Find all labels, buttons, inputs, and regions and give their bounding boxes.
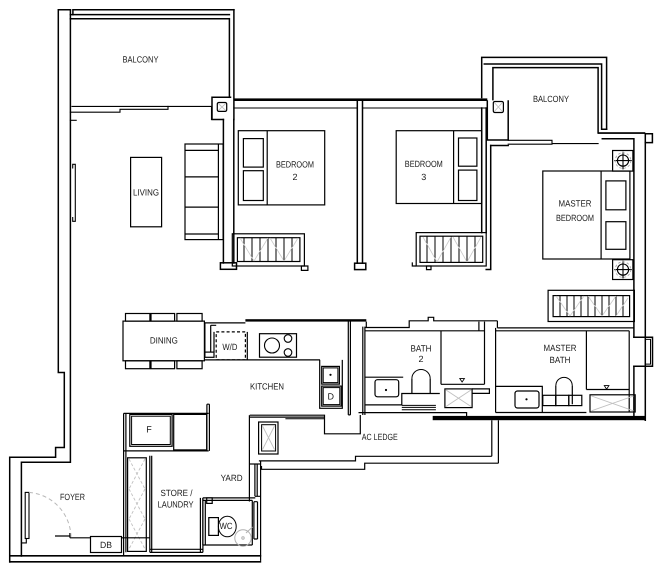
svg-text:2: 2 — [418, 354, 423, 364]
svg-text:2: 2 — [292, 172, 297, 182]
svg-text:BEDROOM: BEDROOM — [276, 160, 314, 170]
svg-text:F: F — [146, 425, 152, 435]
svg-text:BEDROOM: BEDROOM — [405, 159, 443, 169]
svg-text:LAUNDRY: LAUNDRY — [158, 500, 194, 510]
svg-text:YARD: YARD — [221, 473, 243, 483]
svg-text:BATH: BATH — [411, 344, 432, 354]
svg-text:KITCHEN: KITCHEN — [250, 382, 284, 392]
svg-text:STORE /: STORE / — [161, 488, 193, 498]
svg-text:3: 3 — [421, 172, 426, 182]
svg-text:DINING: DINING — [150, 336, 178, 346]
svg-text:BALCONY: BALCONY — [533, 94, 569, 104]
svg-text:AC LEDGE: AC LEDGE — [362, 432, 398, 442]
svg-text:FOYER: FOYER — [60, 492, 85, 502]
svg-text:W/D: W/D — [222, 342, 237, 352]
svg-text:MASTER: MASTER — [559, 199, 592, 209]
svg-text:BEDROOM: BEDROOM — [556, 213, 594, 223]
svg-text:BATH: BATH — [550, 355, 571, 365]
svg-text:D: D — [327, 391, 334, 401]
svg-text:MASTER: MASTER — [544, 343, 577, 353]
svg-text:BALCONY: BALCONY — [123, 55, 159, 65]
svg-text:LIVING: LIVING — [133, 188, 159, 198]
svg-text:DB: DB — [100, 540, 112, 550]
svg-text:WC: WC — [220, 521, 233, 531]
